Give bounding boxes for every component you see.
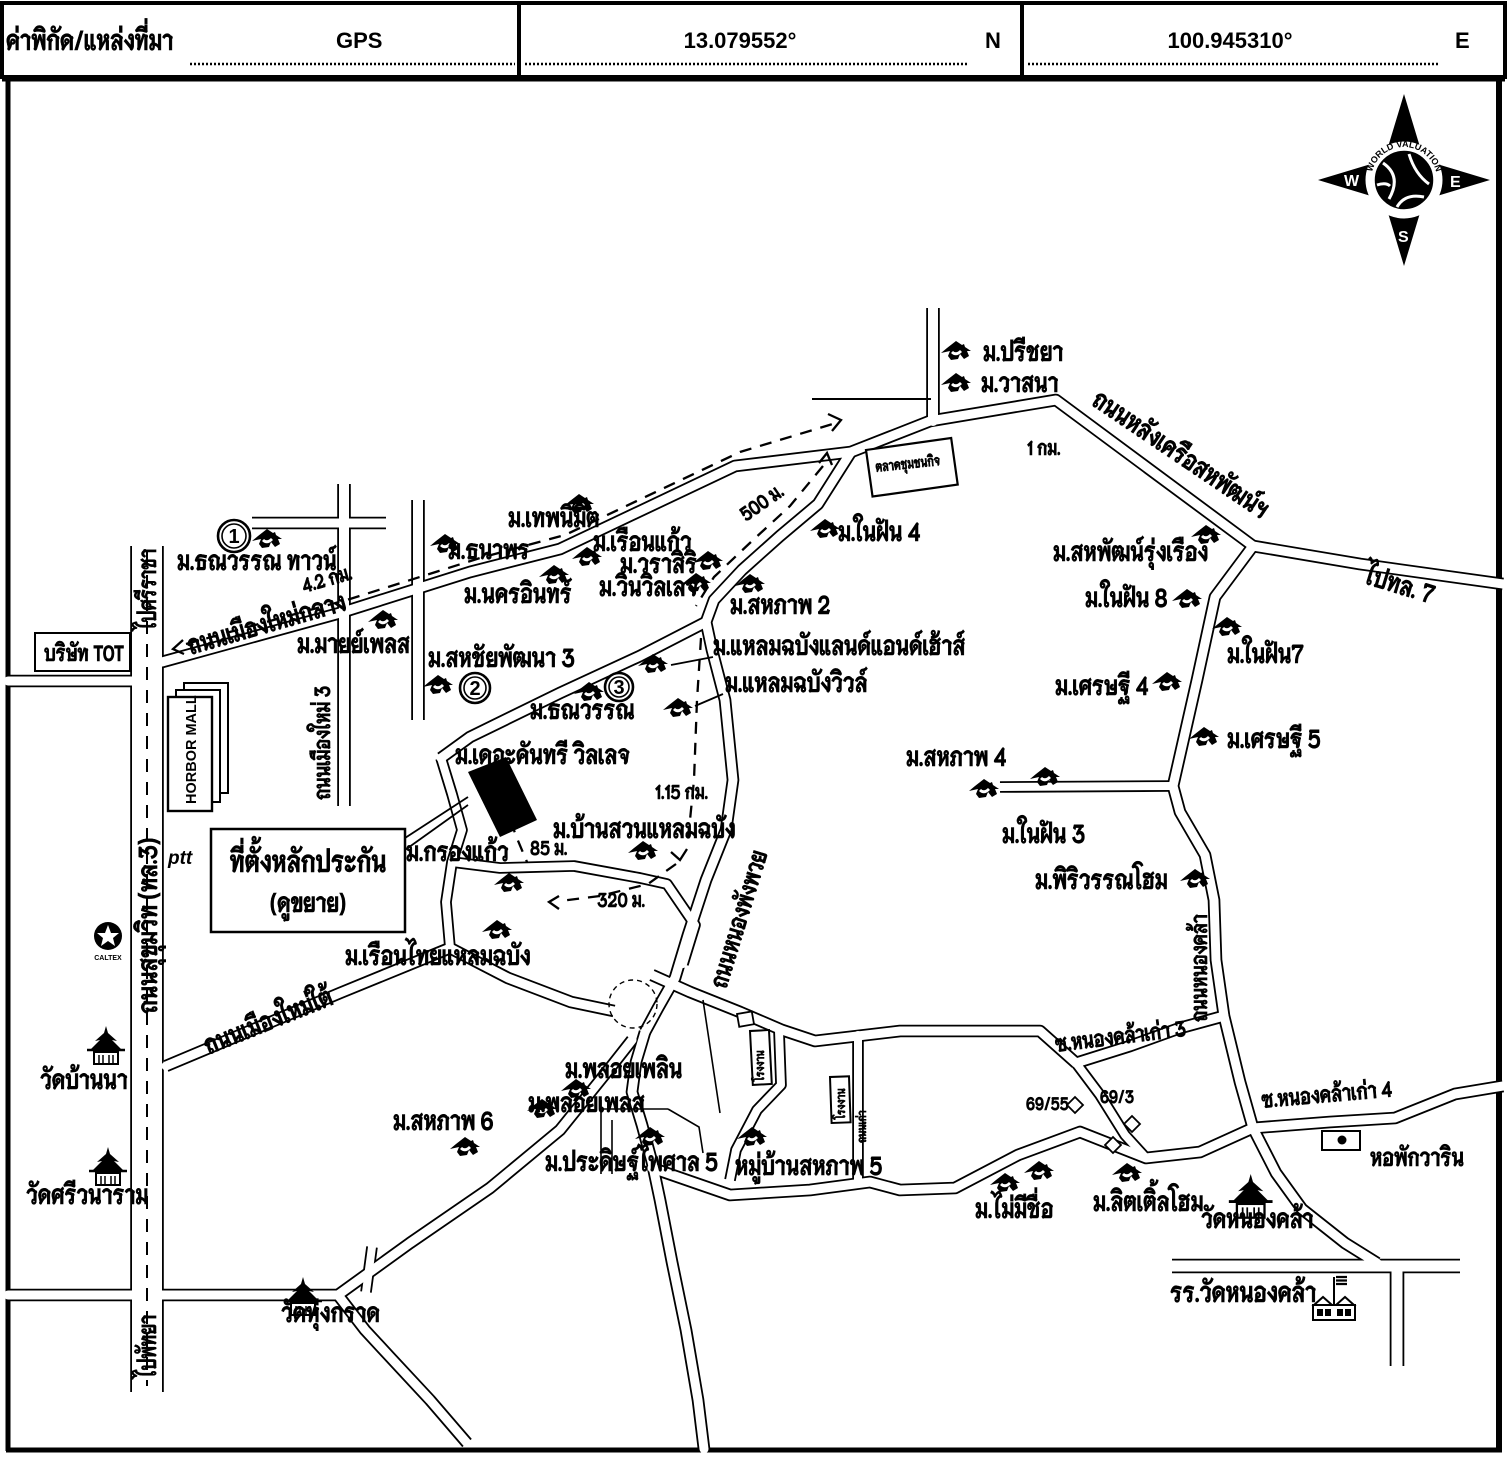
svg-text:ptt: ptt (167, 848, 193, 869)
svg-text:100.945310°: 100.945310° (1167, 28, 1292, 53)
svg-text:N: N (985, 28, 1001, 53)
svg-text:13.079552°: 13.079552° (684, 28, 797, 53)
svg-text:3: 3 (613, 677, 624, 699)
svg-text:HORBOR MALL: HORBOR MALL (184, 695, 200, 804)
svg-text:1: 1 (228, 526, 239, 548)
svg-text:CALTEX: CALTEX (94, 955, 122, 962)
svg-text:E: E (1455, 28, 1470, 53)
svg-text:2: 2 (469, 678, 480, 700)
svg-text:S: S (1398, 229, 1409, 246)
svg-text:E: E (1450, 174, 1461, 191)
svg-text:W: W (1344, 173, 1360, 190)
svg-text:GPS: GPS (336, 28, 382, 53)
